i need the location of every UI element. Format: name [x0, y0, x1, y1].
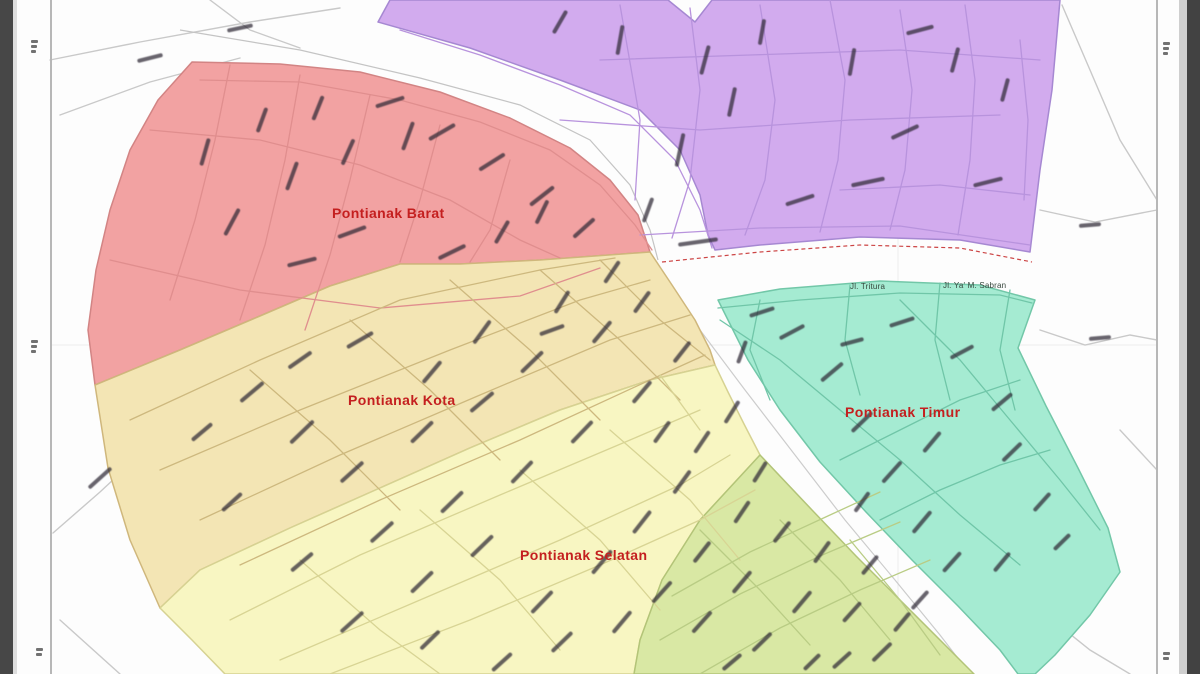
coordinate-tick-label [1163, 652, 1170, 660]
road-line [210, 0, 300, 48]
district-label-pontianak-selatan: Pontianak Selatan [520, 547, 647, 563]
street-name-mark [642, 197, 655, 223]
road-line [1120, 430, 1157, 470]
district-label-pontianak-kota: Pontianak Kota [348, 392, 456, 408]
street-name-mark [227, 23, 253, 32]
coordinate-tick-label [1163, 42, 1170, 55]
left-border-strip [0, 0, 13, 674]
street-name-mark [910, 590, 929, 611]
coordinate-tick-label [36, 648, 43, 656]
coordinate-tick-label [31, 340, 38, 353]
right-border-strip [1187, 0, 1200, 674]
street-name-mark [88, 466, 113, 489]
road-line [1062, 5, 1157, 200]
district-polygons [88, 0, 1120, 674]
road-line [50, 8, 340, 60]
pontianak-district-map: Pontianak Barat Pontianak Kota Pontianak… [0, 0, 1200, 674]
street-label-jl-ya-m-sabran: Jl. Ya' M. Sabran [943, 281, 1006, 290]
left-border-shade [13, 0, 17, 674]
street-label-jl-tritura: Jl. Tritura [850, 282, 885, 291]
street-name-mark [1079, 222, 1101, 228]
coordinate-tick-label [31, 40, 38, 53]
map-frame-right [1156, 0, 1158, 674]
district-label-pontianak-barat: Pontianak Barat [332, 205, 445, 221]
right-border-shade [1179, 0, 1187, 674]
map-frame-left [50, 0, 52, 674]
road-line [1040, 210, 1157, 222]
road-line [60, 620, 120, 674]
street-name-mark [137, 53, 163, 63]
map-image: Pontianak Barat Pontianak Kota Pontianak… [0, 0, 1200, 674]
district-label-pontianak-timur: Pontianak Timur [845, 404, 961, 420]
